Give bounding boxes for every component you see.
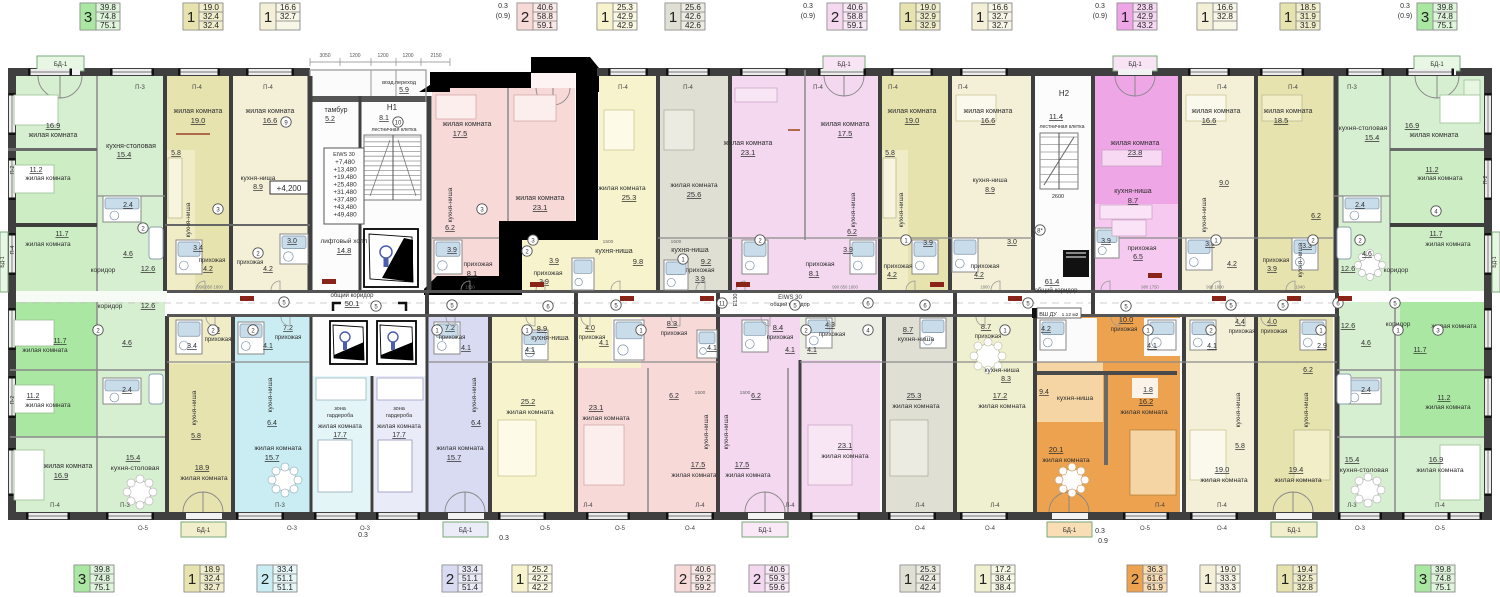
svg-text:гардероба: гардероба [386,413,413,419]
svg-text:16.6: 16.6 [263,116,278,125]
svg-text:кухня-ниша: кухня-ниша [185,202,192,237]
svg-text:жилая комната: жилая комната [254,445,302,452]
svg-text:жилая комната: жилая комната [671,472,717,479]
svg-text:П-4: П-4 [813,85,823,91]
svg-text:Н2: Н2 [1059,89,1070,98]
svg-text:3.9: 3.9 [1101,238,1111,245]
svg-text:прихожая: прихожая [767,335,794,341]
svg-text:38.4: 38.4 [995,583,1011,592]
svg-text:74.8: 74.8 [1437,12,1453,21]
svg-text:2: 2 [679,571,687,588]
svg-text:18.9: 18.9 [204,565,220,574]
svg-text:15.4: 15.4 [1345,455,1360,464]
svg-text:О-4: О-4 [915,526,926,532]
svg-text:П-3: П-3 [275,503,285,509]
svg-text:6.2: 6.2 [1303,367,1313,374]
svg-text:3.9: 3.9 [923,240,933,247]
svg-text:17.5: 17.5 [735,460,750,469]
svg-text:БД-1: БД-1 [1128,62,1142,68]
svg-text:5.9: 5.9 [399,87,409,94]
svg-text:1500: 1500 [740,390,751,396]
svg-text:74.8: 74.8 [1435,574,1451,583]
svg-text:жилая комната: жилая комната [1264,108,1313,115]
svg-text:58.8: 58.8 [537,12,553,21]
svg-text:(0.9): (0.9) [1093,13,1107,20]
svg-text:БД-1: БД-1 [1492,256,1498,267]
svg-text:прихожая: прихожая [199,258,226,264]
svg-text:кухня-ниша: кухня-ниша [850,192,857,227]
svg-text:18.5: 18.5 [1300,3,1316,12]
svg-text:БД-1: БД-1 [1063,528,1077,534]
svg-text:жилая комната: жилая комната [1416,467,1464,474]
svg-text:23.1: 23.1 [838,441,853,450]
svg-text:5.8: 5.8 [191,433,201,440]
svg-text:П-4: П-4 [192,85,202,91]
svg-text:3.4: 3.4 [187,343,197,350]
svg-text:0.3: 0.3 [1095,528,1105,535]
svg-text:О-5: О-5 [540,526,551,532]
svg-text:32.9: 32.9 [920,21,936,30]
svg-text:4.1: 4.1 [807,347,817,354]
svg-text:общий коридор: общий коридор [1035,287,1079,294]
svg-text:19.0: 19.0 [1215,465,1230,474]
svg-text:23.1: 23.1 [741,148,756,157]
svg-text:жилая комната: жилая комната [436,445,484,452]
svg-text:3.9: 3.9 [447,247,457,254]
svg-text:40.6: 40.6 [537,3,553,12]
svg-text:11.7: 11.7 [1429,231,1442,238]
svg-text:жилая комната: жилая комната [1120,409,1168,416]
svg-text:23.8: 23.8 [1128,148,1143,157]
svg-text:8.7: 8.7 [903,325,913,334]
svg-text:6.4: 6.4 [267,420,277,427]
svg-text:4.1: 4.1 [461,345,471,352]
svg-text:прихожая: прихожая [237,260,264,266]
svg-text:жилая комната: жилая комната [821,453,869,460]
svg-text:1500: 1500 [671,239,682,245]
svg-text:42.6: 42.6 [685,21,701,30]
svg-text:прихожая: прихожая [819,332,846,338]
svg-text:E130: E130 [733,294,739,307]
svg-text:1: 1 [1281,571,1289,588]
svg-text:6.5: 6.5 [1133,254,1143,261]
svg-text:кухня-ниша: кухня-ниша [1114,188,1152,195]
svg-text:1: 1 [904,571,912,588]
svg-text:лестничная клетка: лестничная клетка [1039,124,1084,130]
svg-text:П-4: П-4 [1217,503,1227,509]
svg-text:25.2: 25.2 [521,397,536,406]
svg-text:74.8: 74.8 [100,12,116,21]
svg-text:прихожая: прихожая [884,263,913,270]
svg-text:прихожая: прихожая [439,335,466,341]
svg-text:прихожая: прихожая [464,261,493,268]
svg-text:кухня-столовая: кухня-столовая [1339,125,1388,132]
svg-text:18.5: 18.5 [1274,116,1289,125]
svg-text:прихожая: прихожая [1111,327,1138,333]
svg-text:жилая комната: жилая комната [978,403,1026,410]
svg-text:51.1: 51.1 [277,574,293,583]
svg-text:2: 2 [446,571,454,588]
svg-text:коридор: коридор [1384,267,1409,274]
svg-text:тамбур: тамбур [325,106,348,114]
svg-text:кухня-ниша: кухня-ниша [1201,197,1208,232]
svg-text:прихожая: прихожая [975,334,1002,340]
svg-text:+25,480: +25,480 [333,182,357,189]
svg-text:жилая комната: жилая комната [1200,477,1248,484]
svg-text:кухня-столовая: кухня-столовая [111,465,160,472]
svg-text:прихожая: прихожая [971,263,1000,270]
svg-text:3: 3 [84,9,92,26]
svg-text:жилая комната: жилая комната [22,347,68,354]
svg-text:6.2: 6.2 [445,225,455,232]
svg-text:59.2: 59.2 [695,583,711,592]
svg-text:+19,480: +19,480 [333,174,357,181]
svg-text:кухня-ниша: кухня-ниша [595,248,633,255]
svg-text:32.7: 32.7 [992,12,1008,21]
svg-text:8.1: 8.1 [467,269,477,278]
svg-text:жилая комната: жилая комната [598,185,646,192]
svg-text:61.9: 61.9 [1147,583,1163,592]
svg-text:Л-4: Л-4 [695,503,705,509]
svg-text:1: 1 [188,571,196,588]
svg-text:19.0: 19.0 [1220,565,1236,574]
svg-text:8.4: 8.4 [773,323,783,332]
svg-text:10: 10 [395,120,402,126]
svg-text:жилая комната: жилая комната [174,108,223,115]
svg-text:кухня-ниша: кухня-ниша [898,192,905,227]
svg-text:жилая комната: жилая комната [1410,132,1459,139]
svg-text:9.8: 9.8 [633,257,643,266]
svg-text:9.0: 9.0 [1219,180,1229,187]
svg-text:прихожая: прихожая [1128,245,1157,252]
svg-text:8.1: 8.1 [379,115,389,122]
svg-text:прихожая: прихожая [686,267,715,274]
svg-text:32.8: 32.8 [1217,12,1233,21]
svg-text:прихожая: прихожая [661,331,688,337]
svg-text:1: 1 [264,9,272,26]
svg-text:П-4: П-4 [1155,503,1165,509]
svg-text:4.6: 4.6 [1362,251,1372,258]
svg-text:11.2: 11.2 [29,167,42,174]
svg-text:П-4: П-4 [618,85,628,91]
svg-text:14.8: 14.8 [337,246,352,255]
svg-text:4.1: 4.1 [1147,343,1157,350]
svg-text:75.1: 75.1 [94,583,110,592]
svg-text:25.2: 25.2 [532,565,548,574]
svg-text:51.1: 51.1 [462,574,478,583]
svg-text:17.5: 17.5 [838,129,853,138]
svg-text:1500: 1500 [695,390,706,396]
svg-text:990 850 1800: 990 850 1800 [197,285,223,290]
svg-text:15.4: 15.4 [1365,133,1380,142]
svg-text:59.1: 59.1 [537,21,553,30]
svg-text:жилая комната: жилая комната [821,121,870,128]
svg-text:61.6: 61.6 [1147,574,1163,583]
svg-text:О-5: О-5 [138,526,149,532]
svg-text:кухня-ниша: кухня-ниша [241,175,276,182]
svg-text:П-3: П-3 [120,503,130,509]
svg-text:жилая комната: жилая комната [506,409,554,416]
svg-text:Н1: Н1 [387,103,398,112]
svg-text:17.2: 17.2 [995,565,1011,574]
svg-text:17.5: 17.5 [453,129,468,138]
svg-text:П-3: П-3 [135,85,145,91]
svg-text:жилая комната: жилая комната [1417,175,1463,182]
svg-text:БД-1: БД-1 [1430,62,1444,68]
svg-text:42.4: 42.4 [920,574,936,583]
svg-text:Л-4: Л-4 [915,503,925,509]
svg-text:прихожая: прихожая [275,335,302,341]
svg-text:42.9: 42.9 [617,12,633,21]
svg-text:возд.переход: возд.переход [382,80,417,86]
svg-text:жилая комната: жилая комната [892,403,940,410]
svg-text:43.2: 43.2 [1137,21,1153,30]
svg-text:БД-1: БД-1 [1287,528,1301,534]
svg-text:кухня-ниша: кухня-ниша [898,336,935,343]
svg-text:1: 1 [1201,9,1209,26]
svg-text:51.4: 51.4 [462,583,478,592]
svg-text:П-4: П-4 [263,85,273,91]
svg-text:15.4: 15.4 [126,453,141,462]
svg-text:32.7: 32.7 [992,21,1008,30]
svg-text:Л-4: Л-4 [583,503,593,509]
svg-text:+31,480: +31,480 [333,189,357,196]
svg-text:1810: 1810 [465,285,475,290]
svg-text:3.0: 3.0 [1007,239,1017,246]
svg-text:4.2: 4.2 [974,272,984,279]
svg-text:42.9: 42.9 [1137,12,1153,21]
svg-text:0.3: 0.3 [498,3,508,10]
svg-text:EIWS 30: EIWS 30 [333,152,355,158]
svg-text:1.8: 1.8 [1143,387,1153,394]
svg-text:2.4: 2.4 [1361,387,1371,394]
svg-text:БД-1: БД-1 [758,528,772,534]
svg-text:16.6: 16.6 [1202,116,1217,125]
svg-text:О-3: О-3 [1355,526,1366,532]
svg-text:коридор: коридор [91,267,116,274]
svg-text:4.1: 4.1 [525,347,535,354]
svg-text:3: 3 [1421,9,1429,26]
svg-text:+7,480: +7,480 [335,159,355,166]
svg-text:EIWS 30: EIWS 30 [778,295,802,301]
svg-text:прихожая: прихожая [1229,329,1256,335]
svg-text:23.1: 23.1 [589,403,604,412]
svg-text:0.3: 0.3 [499,535,509,542]
svg-text:БД-1: БД-1 [837,62,851,68]
svg-text:П-3: П-3 [1347,85,1357,91]
svg-text:31.9: 31.9 [1300,12,1316,21]
svg-text:П-4: П-4 [1288,85,1298,91]
svg-text:4.6: 4.6 [122,340,132,347]
svg-text:59.1: 59.1 [847,21,863,30]
svg-text:16.6: 16.6 [992,3,1008,12]
svg-text:4.6: 4.6 [123,251,133,258]
svg-text:20.1: 20.1 [1049,445,1064,454]
svg-text:кухня-ниша: кухня-ниша [1235,392,1242,427]
svg-text:15.7: 15.7 [447,453,462,462]
svg-text:4.1: 4.1 [599,340,609,347]
svg-text:8.7: 8.7 [1128,196,1138,205]
svg-text:16.9: 16.9 [46,121,61,130]
svg-text:38.4: 38.4 [995,574,1011,583]
svg-text:12.6: 12.6 [141,264,156,273]
svg-text:кухня-ниша: кухня-ниша [723,414,730,449]
svg-text:16.6: 16.6 [1217,3,1233,12]
svg-text:О-5: О-5 [615,526,626,532]
svg-text:11.4: 11.4 [1049,112,1063,121]
svg-text:жилая комната: жилая комната [443,121,492,128]
svg-text:1500: 1500 [603,239,614,245]
svg-text:общий коридор: общий коридор [331,292,375,299]
svg-text:+49,480: +49,480 [333,212,357,219]
svg-text:П-2: П-2 [10,396,16,405]
svg-text:1: 1 [979,571,987,588]
svg-text:жилая комната: жилая комната [246,108,295,115]
svg-text:42.6: 42.6 [685,12,701,21]
svg-text:П-4: П-4 [1435,503,1445,509]
svg-text:25.6: 25.6 [687,190,702,199]
svg-text:жилая комната: жилая комната [516,195,565,202]
svg-text:0.9: 0.9 [1098,538,1108,545]
svg-text:33.3: 33.3 [1220,574,1236,583]
svg-text:16.9: 16.9 [1405,121,1420,130]
svg-text:(0.9): (0.9) [1398,13,1412,20]
svg-text:зона: зона [393,406,406,412]
svg-text:39.8: 39.8 [100,3,116,12]
svg-text:2: 2 [1131,571,1139,588]
svg-text:кухня-ниша: кухня-ниша [191,390,198,425]
svg-text:кухня-ниша: кухня-ниша [447,187,454,222]
svg-text:19.4: 19.4 [1297,565,1313,574]
svg-text:4.1: 4.1 [707,345,717,352]
svg-text:5.8: 5.8 [171,150,181,157]
svg-text:3.9: 3.9 [843,247,853,254]
svg-text:8.7: 8.7 [981,322,991,331]
svg-text:19.0: 19.0 [920,3,936,12]
svg-text:19.4: 19.4 [1289,465,1304,474]
svg-text:2: 2 [521,9,529,26]
svg-text:39.8: 39.8 [94,565,110,574]
svg-text:0.3: 0.3 [1095,3,1105,10]
svg-text:17.7: 17.7 [392,432,406,439]
svg-text:(0.9): (0.9) [801,13,815,20]
svg-text:кухня-ниша: кухня-ниша [1303,392,1310,427]
svg-text:6.2: 6.2 [751,393,761,400]
svg-text:О-5: О-5 [1435,526,1446,532]
svg-text:17.5: 17.5 [691,460,706,469]
svg-text:5.8: 5.8 [885,150,895,157]
svg-text:жилая комната: жилая комната [25,175,71,182]
svg-text:6.2: 6.2 [1311,213,1321,220]
svg-text:4.1: 4.1 [1207,343,1217,350]
svg-text:12.6: 12.6 [141,301,156,310]
svg-text:5.2: 5.2 [325,116,335,123]
svg-text:О-3: О-3 [287,526,298,532]
svg-text:кухня-ниша: кухня-ниша [267,377,274,412]
svg-text:4.2: 4.2 [1227,261,1237,268]
svg-text:16.9: 16.9 [54,471,69,480]
svg-text:16.2: 16.2 [1139,397,1154,406]
svg-text:8.3: 8.3 [1001,376,1011,383]
svg-text:1800: 1800 [980,285,990,290]
svg-text:51.1: 51.1 [277,583,293,592]
svg-text:жилая комната: жилая комната [582,415,630,422]
svg-text:25.3: 25.3 [617,3,633,12]
svg-text:75.1: 75.1 [1435,583,1451,592]
svg-text:кухня-ниша: кухня-ниша [1057,395,1094,402]
svg-text:6.4: 6.4 [471,420,481,427]
svg-text:11.7: 11.7 [1413,347,1426,354]
svg-text:0.3: 0.3 [1400,3,1410,10]
svg-text:74.8: 74.8 [94,574,110,583]
svg-text:4.1: 4.1 [263,343,273,350]
svg-text:990 1800: 990 1800 [1206,285,1224,290]
svg-text:1: 1 [516,571,524,588]
svg-text:3050: 3050 [319,53,330,59]
svg-text:1: 1 [1121,9,1129,26]
svg-text:75.1: 75.1 [1437,21,1453,30]
svg-text:4.2: 4.2 [263,266,273,273]
svg-text:БД-1: БД-1 [0,256,6,267]
svg-text:2: 2 [261,571,269,588]
svg-text:17.2: 17.2 [993,391,1008,400]
svg-text:Л-4: Л-4 [785,503,795,509]
svg-text:лестничная клетка: лестничная клетка [371,127,416,133]
svg-text:жилая комната: жилая комната [29,132,78,139]
svg-text:9.4: 9.4 [1039,389,1049,396]
svg-text:32.5: 32.5 [1297,574,1313,583]
svg-text:+43,480: +43,480 [333,204,357,211]
svg-text:жилая комната: жилая комната [670,182,718,189]
svg-text:П-4: П-4 [683,85,693,91]
svg-text:1040: 1040 [1295,285,1305,290]
svg-text:4.2: 4.2 [887,272,897,279]
svg-text:БД-1: БД-1 [54,62,68,68]
svg-text:1: 1 [976,9,984,26]
svg-text:жилая комната: жилая комната [1425,241,1471,248]
svg-text:жилая комната: жилая комната [180,475,228,482]
svg-text:40.6: 40.6 [769,565,785,574]
svg-text:33.4: 33.4 [277,565,293,574]
svg-text:61.4: 61.4 [1045,277,1060,286]
svg-text:12.6: 12.6 [1341,264,1356,273]
svg-text:25.3: 25.3 [920,565,936,574]
svg-text:кухня-ниша: кухня-ниша [973,177,1008,184]
svg-text:О-4: О-4 [1217,526,1228,532]
svg-text:3: 3 [78,571,86,588]
svg-text:75.1: 75.1 [100,21,116,30]
svg-text:3.9: 3.9 [549,258,559,265]
svg-text:16.6: 16.6 [981,116,996,125]
svg-text:11.2: 11.2 [1425,167,1438,174]
svg-text:3.4: 3.4 [193,245,203,252]
svg-text:1: 1 [601,9,609,26]
svg-text:4.6: 4.6 [1361,340,1371,347]
svg-text:лифтовый холл: лифтовый холл [321,237,368,245]
svg-text:59.3: 59.3 [769,574,785,583]
svg-text:11.7: 11.7 [53,338,66,345]
svg-text:(0.9): (0.9) [496,13,510,20]
svg-text:кухня-ниша: кухня-ниша [531,335,569,342]
svg-text:П-4: П-4 [958,85,968,91]
svg-text:4.0: 4.0 [1267,319,1277,326]
svg-text:32.4: 32.4 [203,21,219,30]
svg-text:О-5: О-5 [1140,526,1151,532]
svg-text:15.4: 15.4 [117,150,132,159]
svg-text:прихожая: прихожая [1261,329,1288,335]
svg-text:О-4: О-4 [685,526,696,532]
svg-text:1200: 1200 [349,53,360,59]
